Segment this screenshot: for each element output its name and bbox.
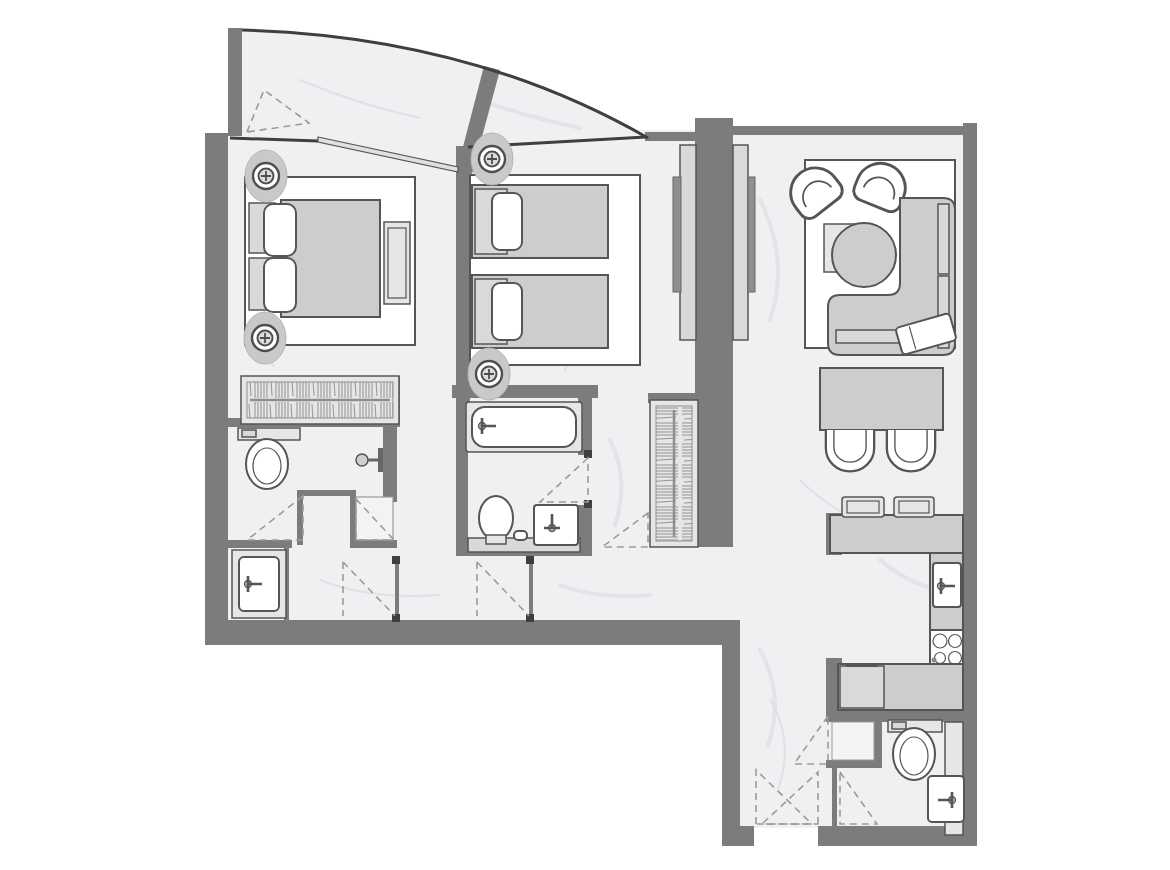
bar-counter (830, 515, 963, 553)
ceiling-downlight (471, 133, 513, 185)
kitchen-sink (933, 563, 961, 607)
floor-plan-canvas (0, 0, 1170, 870)
vanity-sink (232, 550, 286, 618)
bathtub (466, 402, 582, 452)
ceiling-downlight (468, 348, 510, 400)
vanity-sink (534, 505, 578, 545)
room-living (781, 156, 957, 355)
pillow (492, 283, 522, 340)
dining-chair (887, 430, 935, 471)
floor-plan (0, 0, 1170, 870)
refrigerator (840, 663, 884, 708)
soap-dish (514, 531, 527, 540)
storage-niche (832, 722, 874, 760)
pillow (492, 193, 522, 250)
room-master-bedroom (241, 150, 415, 424)
tv-screen (673, 177, 681, 292)
cooktop-4-burner (930, 630, 963, 668)
bar-stool (842, 497, 884, 517)
tv-screen (748, 177, 755, 292)
sofa-back-cushion (938, 204, 949, 274)
foot-bench (384, 222, 410, 304)
vanity-sink (928, 776, 964, 822)
ceiling-downlight (244, 312, 286, 364)
hallway-wardrobe-hanging-rail (650, 400, 698, 547)
twin-bed (472, 185, 608, 258)
bar-stool (894, 497, 934, 517)
twin-bed (472, 275, 608, 348)
wardrobe-hanging-rail (241, 376, 399, 424)
coffee-table-round (832, 223, 896, 287)
dining-table (820, 368, 943, 430)
pillow (264, 258, 296, 312)
dining-chair (826, 430, 874, 471)
ceiling-downlight (245, 150, 287, 202)
pillow (264, 204, 296, 256)
